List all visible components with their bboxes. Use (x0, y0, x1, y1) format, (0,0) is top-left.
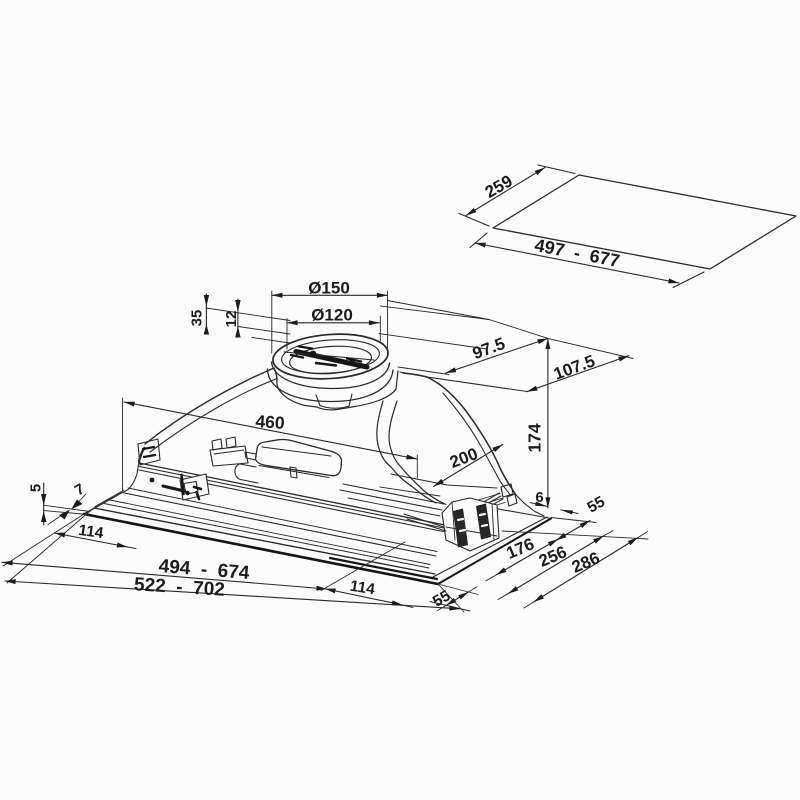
svg-text:174: 174 (525, 423, 545, 452)
svg-text:Ø150: Ø150 (308, 279, 350, 298)
svg-text:6: 6 (535, 489, 543, 506)
svg-text:460: 460 (255, 411, 286, 433)
svg-text:35: 35 (189, 310, 206, 327)
svg-text:5: 5 (28, 484, 45, 492)
svg-text:114: 114 (77, 522, 105, 542)
svg-text:Ø120: Ø120 (311, 306, 353, 325)
svg-text:12: 12 (223, 311, 240, 328)
